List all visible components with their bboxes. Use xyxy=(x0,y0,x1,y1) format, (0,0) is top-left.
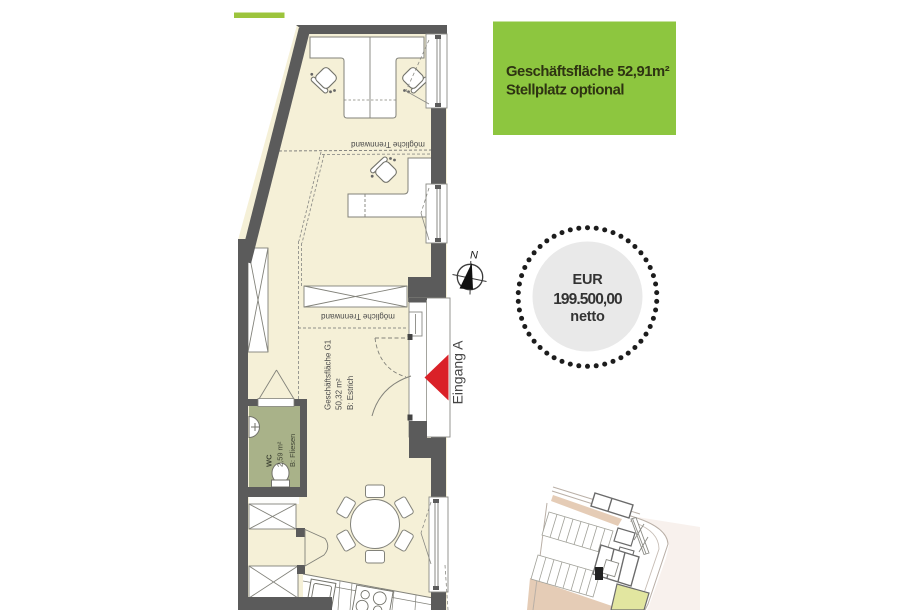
svg-text:WC: WC xyxy=(265,454,274,467)
svg-text:N: N xyxy=(470,250,478,262)
svg-text:B: Fliesen: B: Fliesen xyxy=(288,434,297,467)
svg-text:Eingang A: Eingang A xyxy=(450,340,466,404)
svg-text:Geschäftsfläche G1: Geschäftsfläche G1 xyxy=(324,339,333,410)
svg-text:Stellplatz optional: Stellplatz optional xyxy=(506,83,624,99)
svg-text:netto: netto xyxy=(570,309,605,325)
svg-text:Geschäftsfläche 52,91m²: Geschäftsfläche 52,91m² xyxy=(506,64,670,80)
svg-text:2,59 m²: 2,59 m² xyxy=(276,441,285,467)
svg-text:EUR: EUR xyxy=(572,272,603,288)
svg-text:199.500,00: 199.500,00 xyxy=(553,291,622,308)
svg-text:mögliche Trennwand: mögliche Trennwand xyxy=(351,140,425,149)
svg-text:mögliche Trennwand: mögliche Trennwand xyxy=(321,312,395,321)
svg-text:B: Estrich: B: Estrich xyxy=(346,376,355,410)
svg-text:50,32 m²: 50,32 m² xyxy=(335,378,344,410)
